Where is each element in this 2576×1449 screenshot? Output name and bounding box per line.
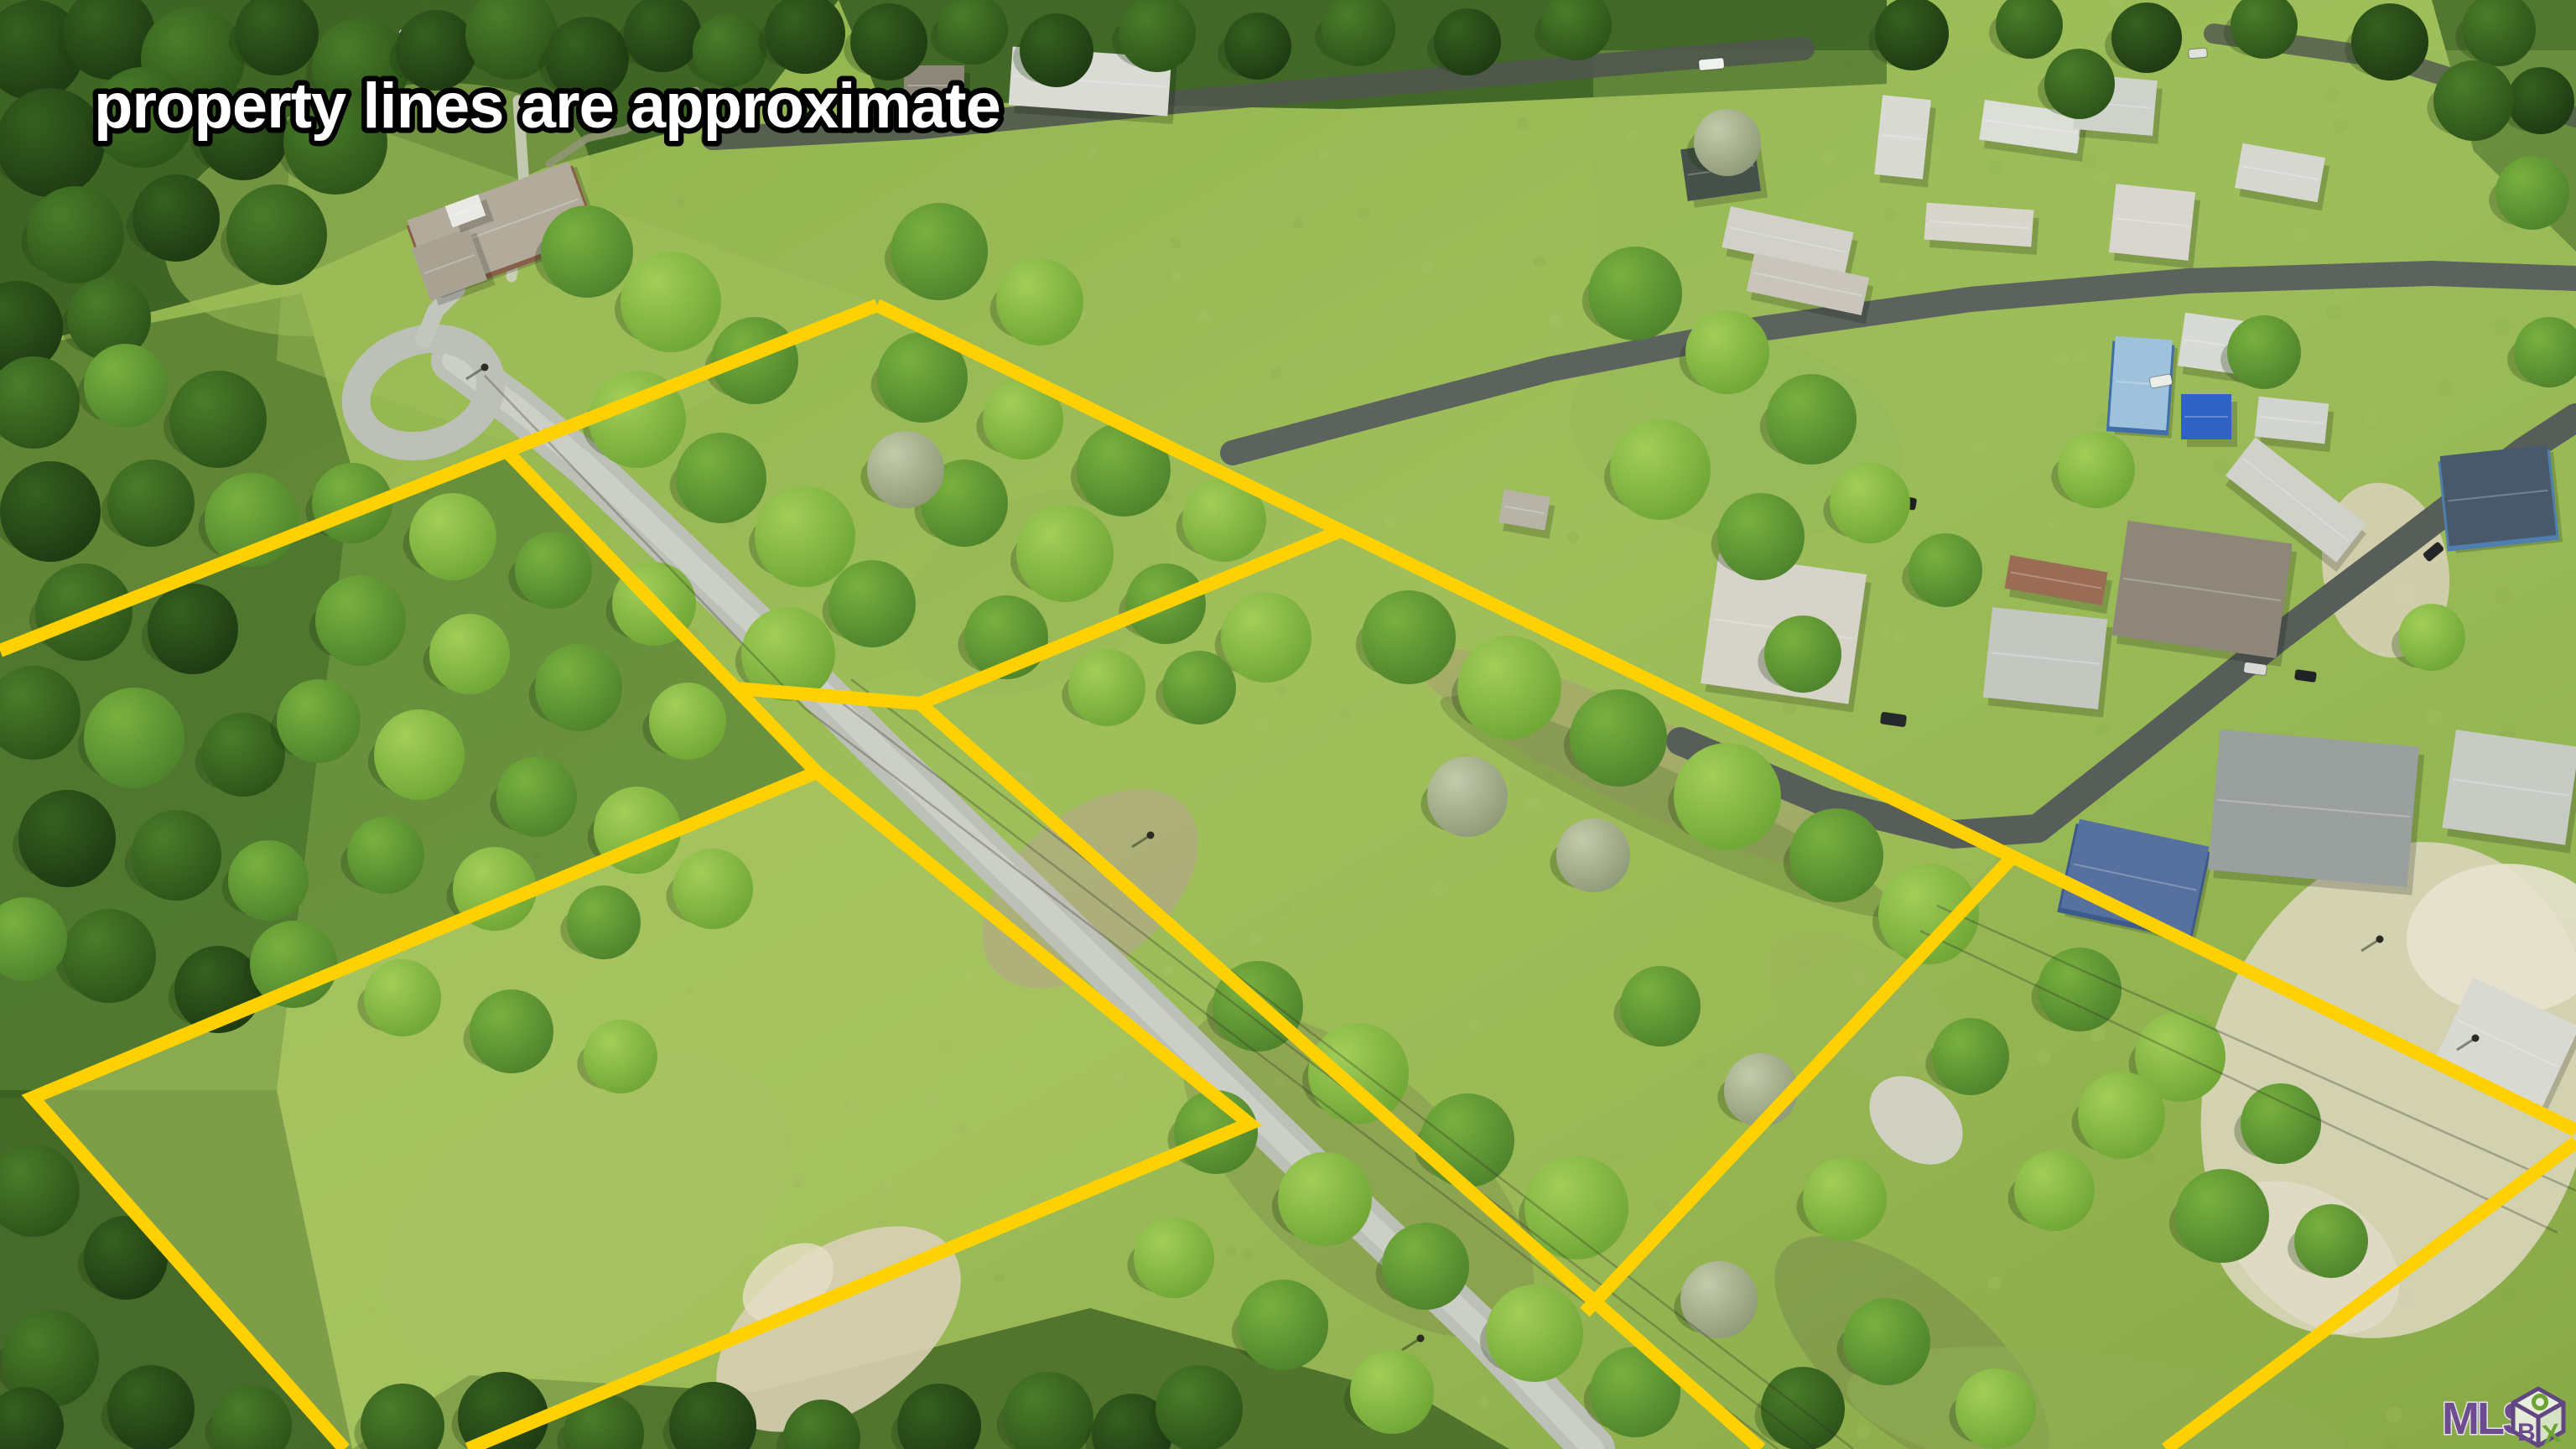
tree: [1350, 1350, 1434, 1434]
tree: [1224, 13, 1291, 80]
tree: [567, 885, 641, 959]
tree: [867, 431, 944, 508]
tree: [891, 203, 988, 300]
tree: [1955, 1368, 2036, 1449]
tree: [1766, 374, 1857, 465]
tree: [755, 486, 855, 587]
tree: [1162, 651, 1236, 724]
grass-mottle: [1358, 207, 1369, 218]
tree: [1068, 649, 1145, 726]
tree: [2014, 1150, 2095, 1231]
tree: [1221, 592, 1311, 683]
utility-pole: [1147, 832, 1155, 839]
grass-mottle: [1478, 1396, 1489, 1408]
tree: [535, 644, 622, 731]
tree: [1875, 0, 1949, 70]
tree: [1486, 1285, 1583, 1382]
cube-letter-b: B: [2517, 1419, 2536, 1446]
aerial-photo: property lines are approximate MLS B X: [0, 0, 2576, 1449]
tree: [2351, 3, 2428, 80]
grass-mottle: [1088, 147, 1098, 157]
tree: [0, 88, 105, 197]
tree: [107, 460, 195, 547]
tree: [1134, 1218, 1214, 1298]
tree: [1674, 743, 1781, 850]
tree: [2058, 431, 2135, 508]
tree: [374, 709, 465, 800]
tree: [1016, 505, 1114, 602]
watermark-text: property lines are approximate: [94, 70, 1000, 142]
tree: [62, 909, 156, 1003]
tree: [409, 493, 496, 580]
grass-mottle: [1271, 368, 1282, 379]
house: [1924, 203, 2039, 255]
tree: [850, 3, 927, 80]
tree: [1685, 310, 1769, 394]
tree: [1803, 1157, 1887, 1241]
tree: [2294, 1204, 2368, 1278]
tree: [673, 849, 753, 929]
tree: [1610, 419, 1711, 520]
tree: [1764, 615, 1841, 693]
tree: [584, 1020, 657, 1093]
tree: [364, 959, 441, 1036]
tree: [2433, 60, 2514, 141]
tree: [315, 575, 406, 666]
tree: [1761, 1367, 1845, 1449]
house: [2106, 336, 2179, 439]
tree: [84, 688, 184, 788]
tree: [1427, 756, 1508, 837]
tree: [1588, 247, 1682, 340]
tree: [131, 810, 221, 901]
tree: [1457, 636, 1561, 740]
tree: [277, 679, 361, 763]
utility-pole: [2472, 1035, 2480, 1042]
tree: [2038, 948, 2122, 1031]
car: [2189, 48, 2208, 59]
tree: [2175, 1169, 2269, 1263]
grass-mottle: [676, 199, 684, 207]
grass-mottle: [2090, 1027, 2105, 1041]
grass-mottle: [1225, 1247, 1236, 1258]
tree: [347, 817, 424, 894]
tree: [1717, 493, 1805, 580]
tree: [1694, 109, 1761, 176]
house: [2438, 444, 2563, 554]
tree: [2111, 3, 2182, 73]
tree: [1932, 1018, 2009, 1095]
tree: [496, 756, 577, 837]
house: [1982, 607, 2113, 718]
tree: [1434, 8, 1501, 75]
utility-pole: [2376, 936, 2384, 943]
tree: [148, 584, 238, 674]
tree: [2507, 67, 2574, 134]
mls-logo: MLS B X: [2442, 1389, 2563, 1449]
grass-mottle: [2501, 1286, 2517, 1303]
grass-mottle: [1171, 271, 1182, 281]
tree: [996, 258, 1083, 345]
grass-mottle: [1517, 117, 1529, 129]
tree: [1620, 966, 1701, 1046]
tree: [1843, 1298, 1930, 1385]
tree: [1909, 533, 1982, 607]
tree: [828, 560, 916, 647]
grass-mottle: [1534, 256, 1545, 267]
house: [2254, 397, 2334, 452]
utility-pole: [481, 364, 489, 371]
grass-mottle: [1567, 532, 1580, 544]
grass-mottle: [2386, 1407, 2402, 1423]
tree: [1156, 1365, 1243, 1449]
tree: [0, 461, 101, 562]
tree: [1020, 13, 1093, 87]
grass-mottle: [1171, 238, 1181, 248]
house: [2108, 184, 2201, 268]
tree: [429, 614, 510, 694]
tree: [84, 344, 168, 428]
tree: [1420, 1093, 1514, 1187]
grass-mottle: [1163, 965, 1173, 975]
grass-mottle: [1857, 1426, 1870, 1439]
grass-mottle: [995, 1273, 1004, 1282]
tree: [169, 371, 267, 468]
utility-pole: [1417, 1335, 1425, 1343]
tree: [1830, 463, 1910, 543]
photo-layers: [0, 0, 2576, 1449]
grass-mottle: [1293, 218, 1304, 229]
grass-mottle: [2036, 1050, 2050, 1064]
tree: [2078, 1072, 2165, 1159]
tree: [2398, 604, 2465, 671]
tree: [1382, 1223, 1469, 1310]
tree: [226, 184, 327, 285]
tree: [1570, 689, 1667, 787]
car: [1698, 58, 1724, 71]
tree: [621, 252, 721, 352]
tree: [2241, 1083, 2321, 1164]
tree: [1362, 590, 1456, 684]
tree: [1238, 1280, 1328, 1370]
tree: [676, 433, 766, 523]
tree: [2227, 315, 2301, 389]
tree: [2495, 156, 2569, 230]
tree: [1789, 808, 1883, 902]
tree: [1556, 818, 1630, 892]
tree: [2044, 49, 2115, 119]
house: [1873, 95, 1937, 187]
tree: [228, 840, 309, 921]
tree: [27, 186, 124, 283]
mls-cube-icon: B X: [2513, 1389, 2563, 1449]
grass-mottle: [1199, 311, 1210, 322]
tree: [107, 1365, 195, 1449]
tree: [1680, 1261, 1758, 1338]
tree: [649, 683, 726, 760]
tree: [470, 989, 553, 1073]
aerial-photo-svg: property lines are approximate MLS B X: [0, 0, 2576, 1449]
tree: [1278, 1152, 1372, 1246]
grass-mottle: [1987, 1276, 2002, 1291]
grass-mottle: [1318, 148, 1329, 159]
grass-mottle: [1550, 314, 1561, 325]
house: [2181, 394, 2237, 447]
grass-mottle: [1421, 261, 1433, 273]
tree: [541, 205, 633, 298]
tree: [515, 532, 592, 609]
house: [2441, 730, 2576, 853]
house: [2207, 730, 2424, 896]
house: [2111, 521, 2298, 667]
grass-mottle: [1384, 517, 1396, 528]
tree: [132, 174, 220, 262]
grass-mottle: [1244, 1249, 1254, 1260]
tree: [18, 790, 116, 887]
tree: [1308, 1023, 1409, 1124]
